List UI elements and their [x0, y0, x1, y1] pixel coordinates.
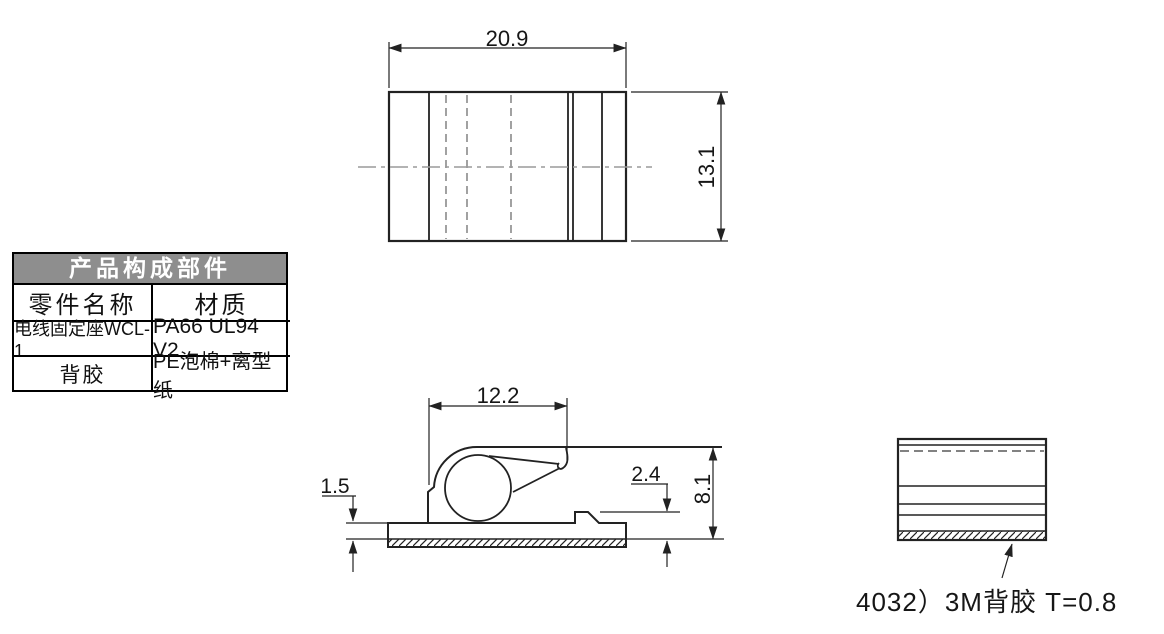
adhesive-note-leader — [1002, 544, 1012, 578]
parts-table: 产品构成部件 零件名称 材质 电线固定座WCL-1 PA66 UL94 V2 背… — [12, 252, 288, 392]
top-view-width-dimension: 20.9 — [467, 26, 547, 52]
parts-table-cell-part-1: 电线固定座WCL-1 — [14, 320, 153, 355]
side-view-outline — [388, 447, 722, 547]
side-view-wire-channel — [445, 455, 511, 521]
parts-table-title: 产品构成部件 — [12, 252, 288, 285]
parts-table-cell-part-2: 背胶 — [14, 355, 153, 390]
top-view-dimension-lines — [389, 42, 728, 241]
adhesive-note: 4032）3M背胶 T=0.8 — [856, 582, 1117, 619]
adhesive-view-hatch — [898, 531, 1046, 540]
top-view-height-dimension: 13.1 — [694, 127, 718, 207]
side-view-adhesive-hatch — [388, 539, 626, 547]
parts-table-cell-material-2: PE泡棉+离型纸 — [153, 355, 290, 390]
adhesive-view-outline — [898, 439, 1046, 540]
parts-table-grid: 零件名称 材质 电线固定座WCL-1 PA66 UL94 V2 背胶 PE泡棉+… — [12, 285, 288, 392]
engineering-drawing-page: 20.9 13.1 12.2 1.5 2.4 8.1 4032）3M背胶 T=0… — [0, 0, 1164, 634]
side-view-clip-width-dimension: 12.2 — [458, 383, 538, 409]
side-view-step-height-dimension: 2.4 — [624, 463, 668, 487]
side-view-overall-height-dimension: 8.1 — [690, 449, 714, 529]
side-view-base-thickness-dimension: 1.5 — [313, 475, 357, 499]
